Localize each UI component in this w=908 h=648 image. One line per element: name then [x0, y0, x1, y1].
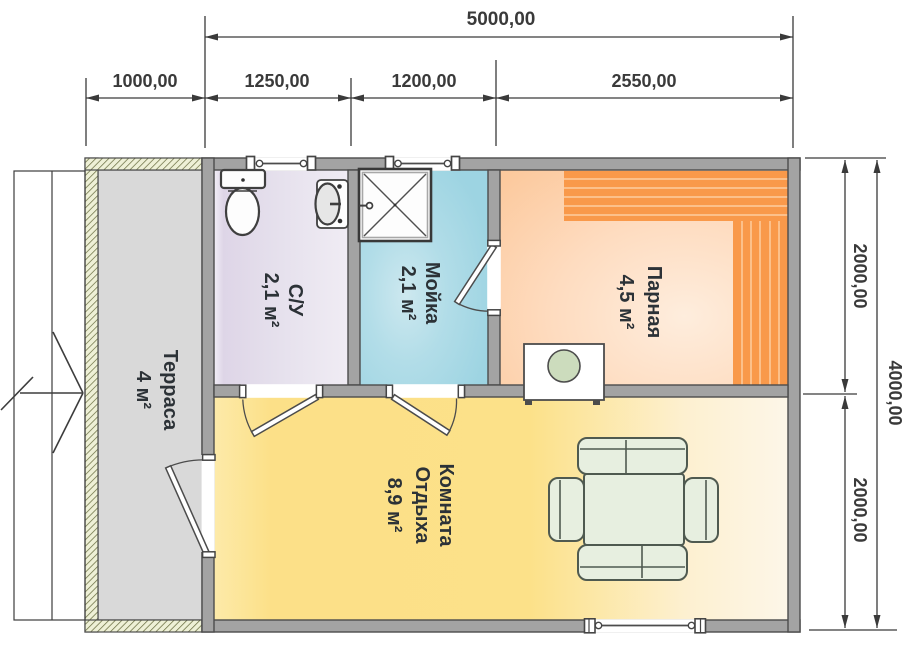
- svg-text:4000,00: 4000,00: [885, 360, 905, 425]
- svg-text:2,1 м²: 2,1 м²: [397, 266, 419, 321]
- svg-text:4,5 м²: 4,5 м²: [615, 275, 637, 330]
- svg-text:1200,00: 1200,00: [391, 71, 456, 91]
- svg-text:8,9 м²: 8,9 м²: [383, 478, 405, 533]
- svg-text:С/У: С/У: [284, 284, 306, 317]
- svg-text:Мойка: Мойка: [421, 262, 443, 325]
- svg-text:1250,00: 1250,00: [244, 71, 309, 91]
- svg-text:2,1 м²: 2,1 м²: [260, 273, 282, 328]
- svg-text:2000,00: 2000,00: [850, 243, 870, 308]
- svg-text:Парная: Парная: [643, 266, 665, 339]
- svg-text:4 м²: 4 м²: [132, 371, 154, 409]
- svg-text:Комната: Комната: [435, 463, 457, 547]
- svg-text:Терраса: Терраса: [159, 350, 181, 431]
- svg-text:1000,00: 1000,00: [112, 71, 177, 91]
- svg-text:Отдыха: Отдыха: [411, 466, 433, 544]
- svg-text:2550,00: 2550,00: [611, 71, 676, 91]
- svg-text:2000,00: 2000,00: [850, 477, 870, 542]
- svg-text:5000,00: 5000,00: [467, 9, 536, 30]
